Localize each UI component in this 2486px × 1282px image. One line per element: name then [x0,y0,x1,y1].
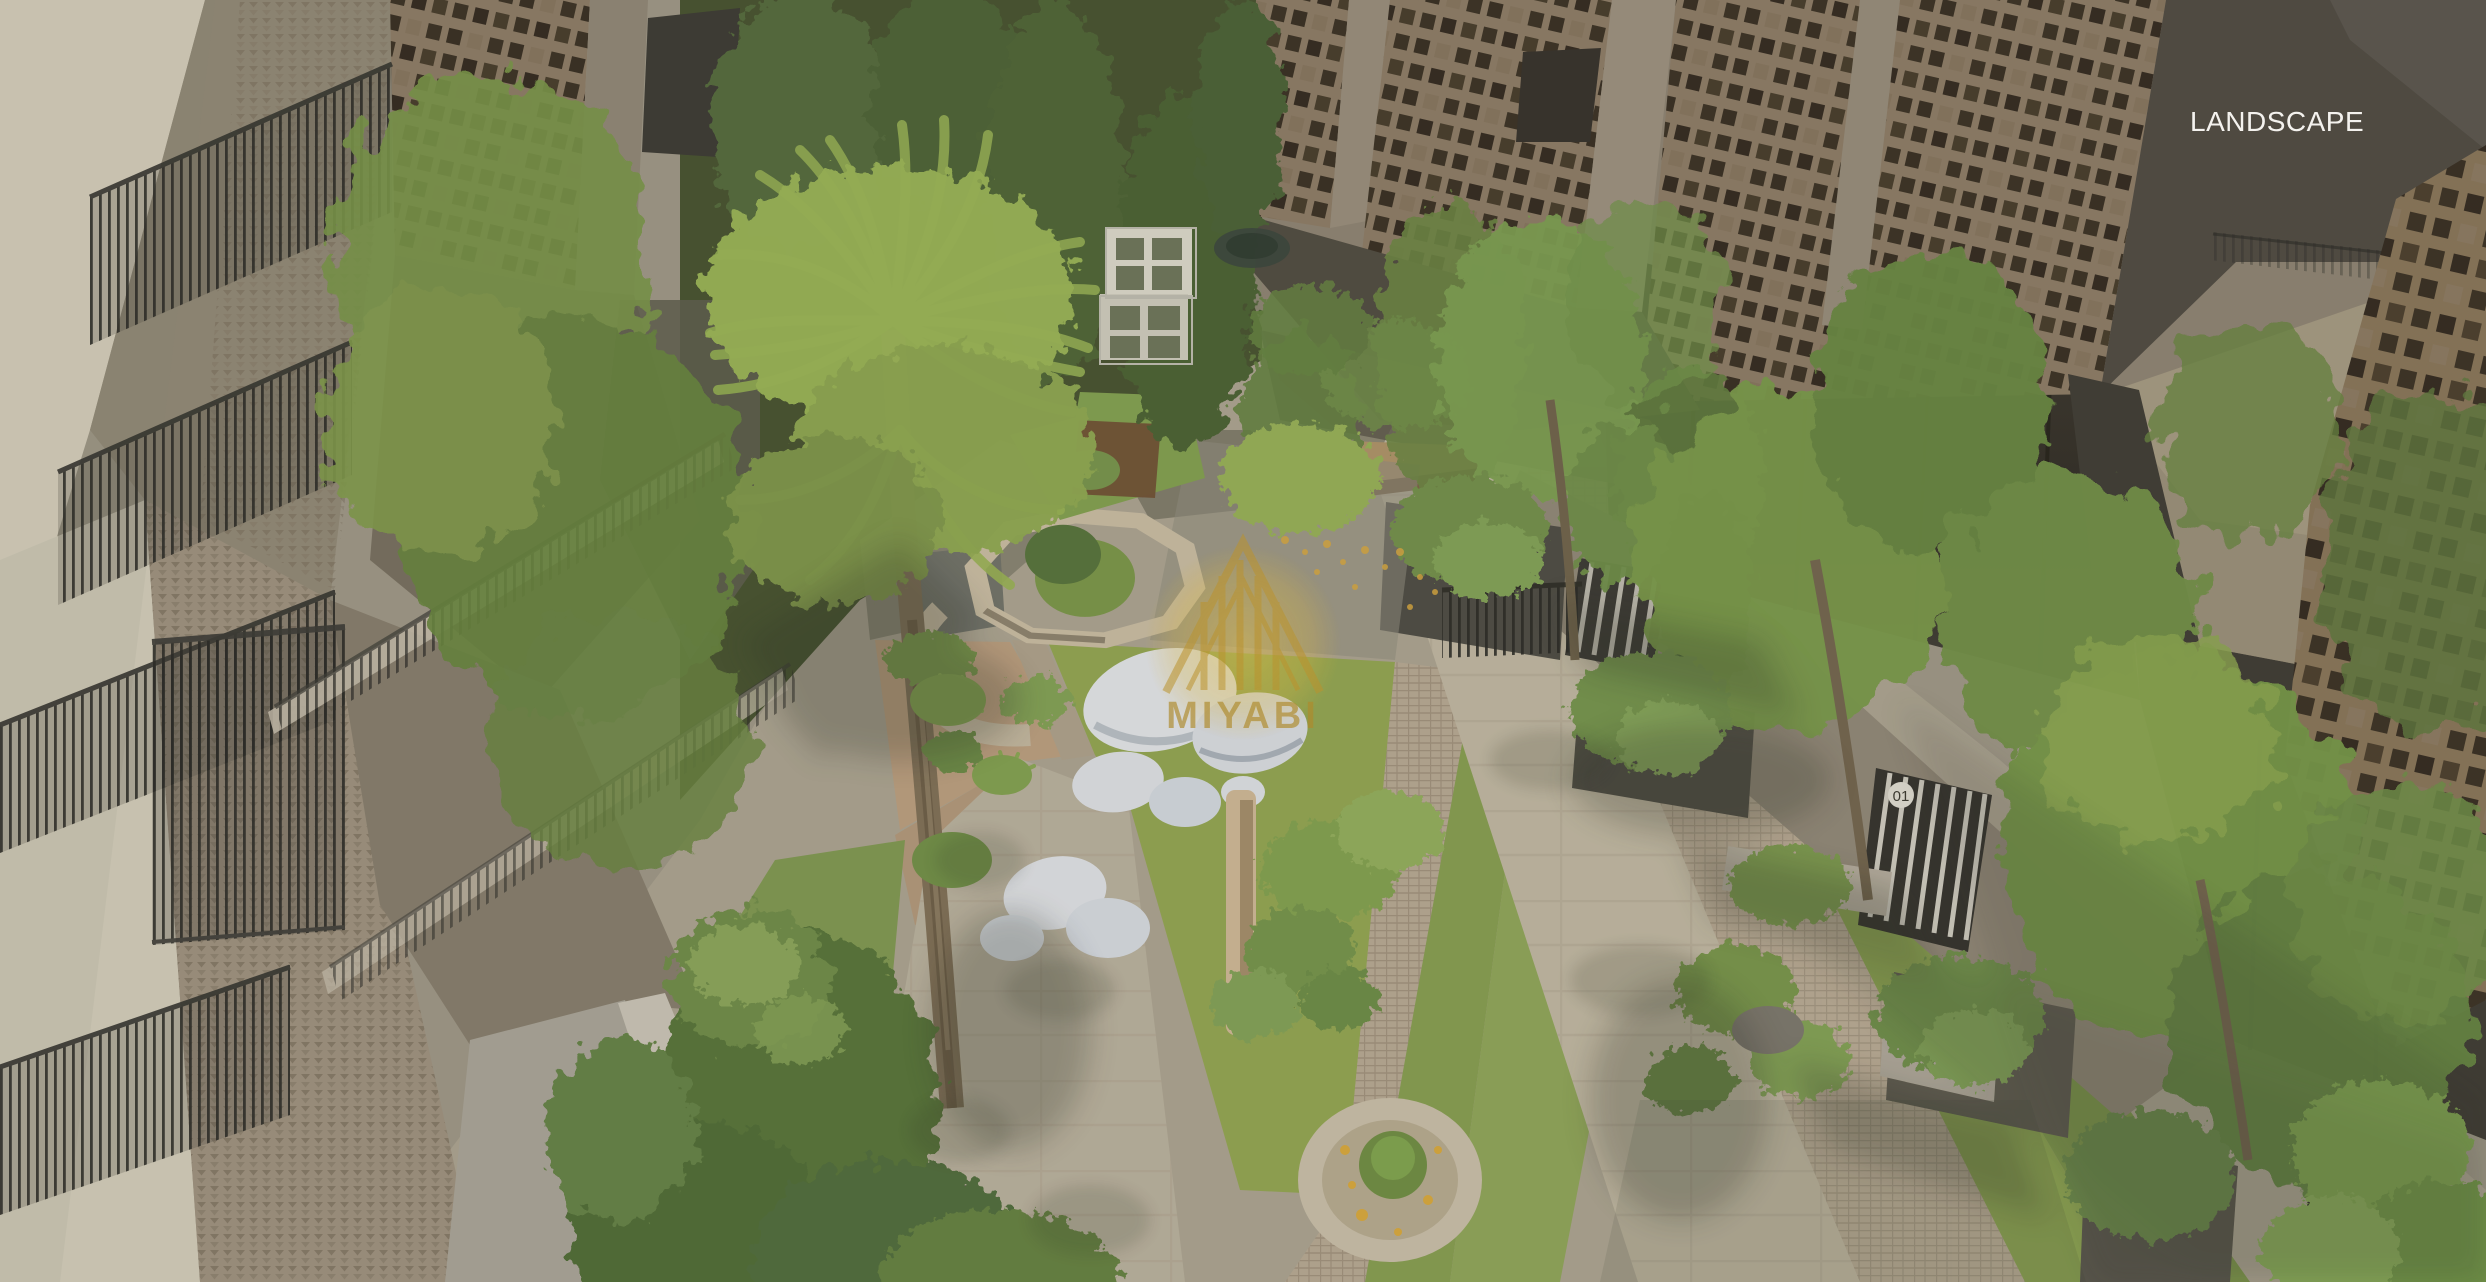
svg-text:LANDSCAPE: LANDSCAPE [2190,106,2364,137]
